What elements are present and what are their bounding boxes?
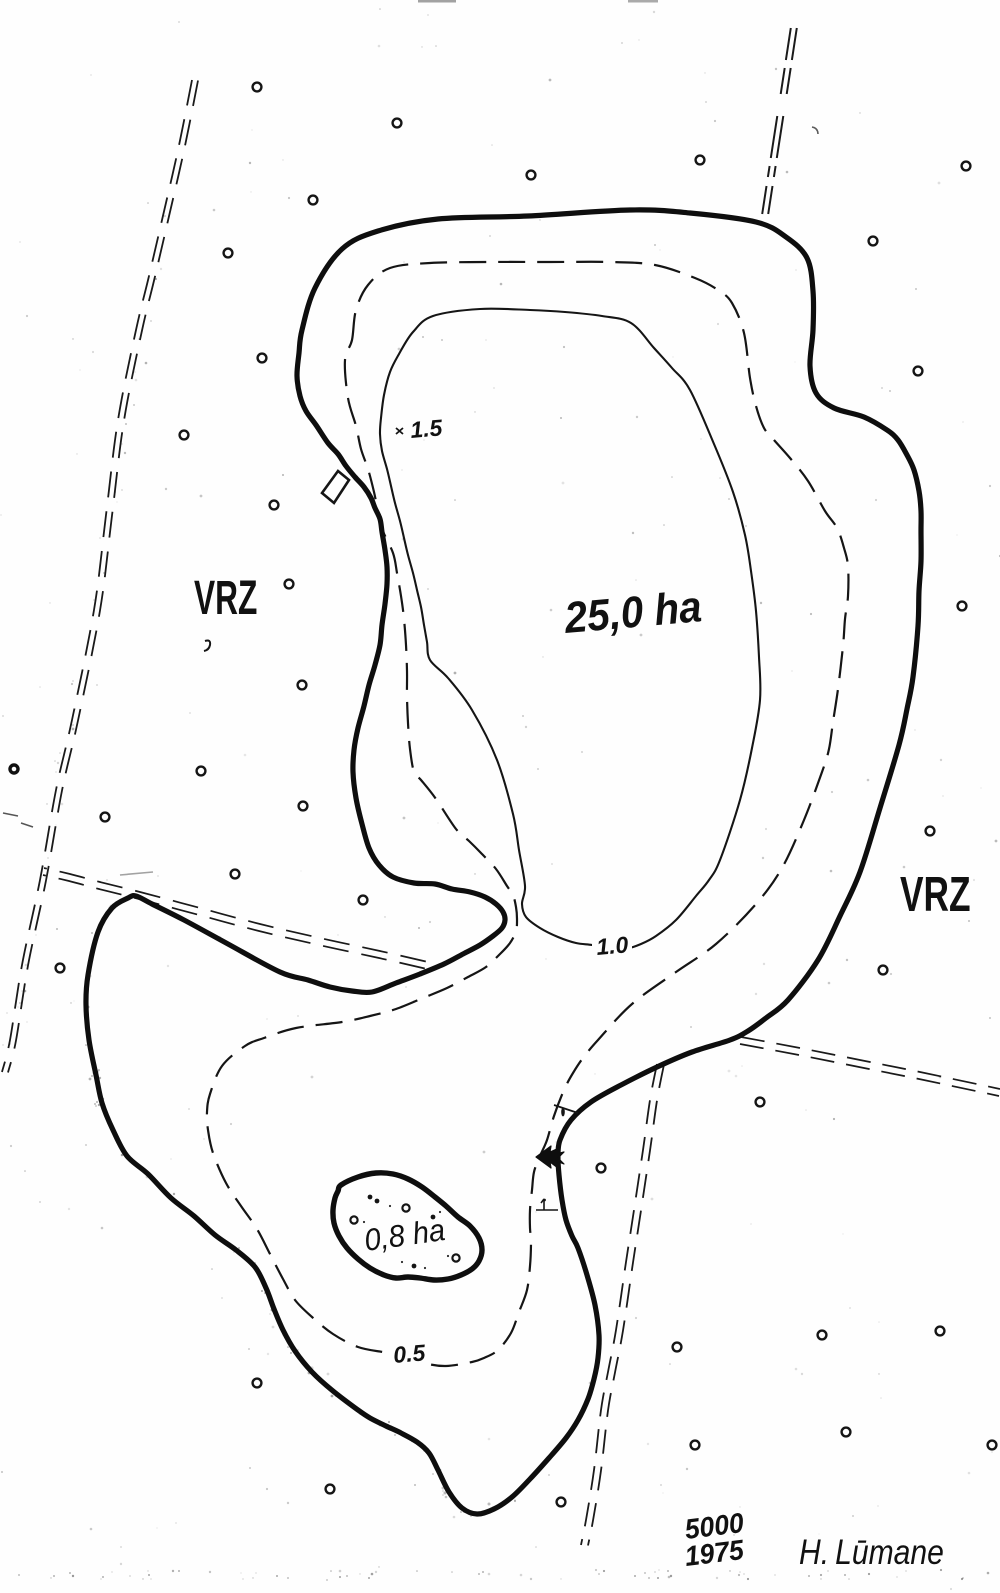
svg-text:0.5: 0.5 bbox=[392, 1339, 427, 1368]
svg-text:1.5: 1.5 bbox=[409, 414, 444, 443]
svg-text:VRZ: VRZ bbox=[900, 867, 971, 922]
svg-text:H. Lūmane: H. Lūmane bbox=[799, 1532, 944, 1572]
svg-text:VRZ: VRZ bbox=[194, 570, 257, 624]
svg-text:1.0: 1.0 bbox=[595, 931, 629, 960]
